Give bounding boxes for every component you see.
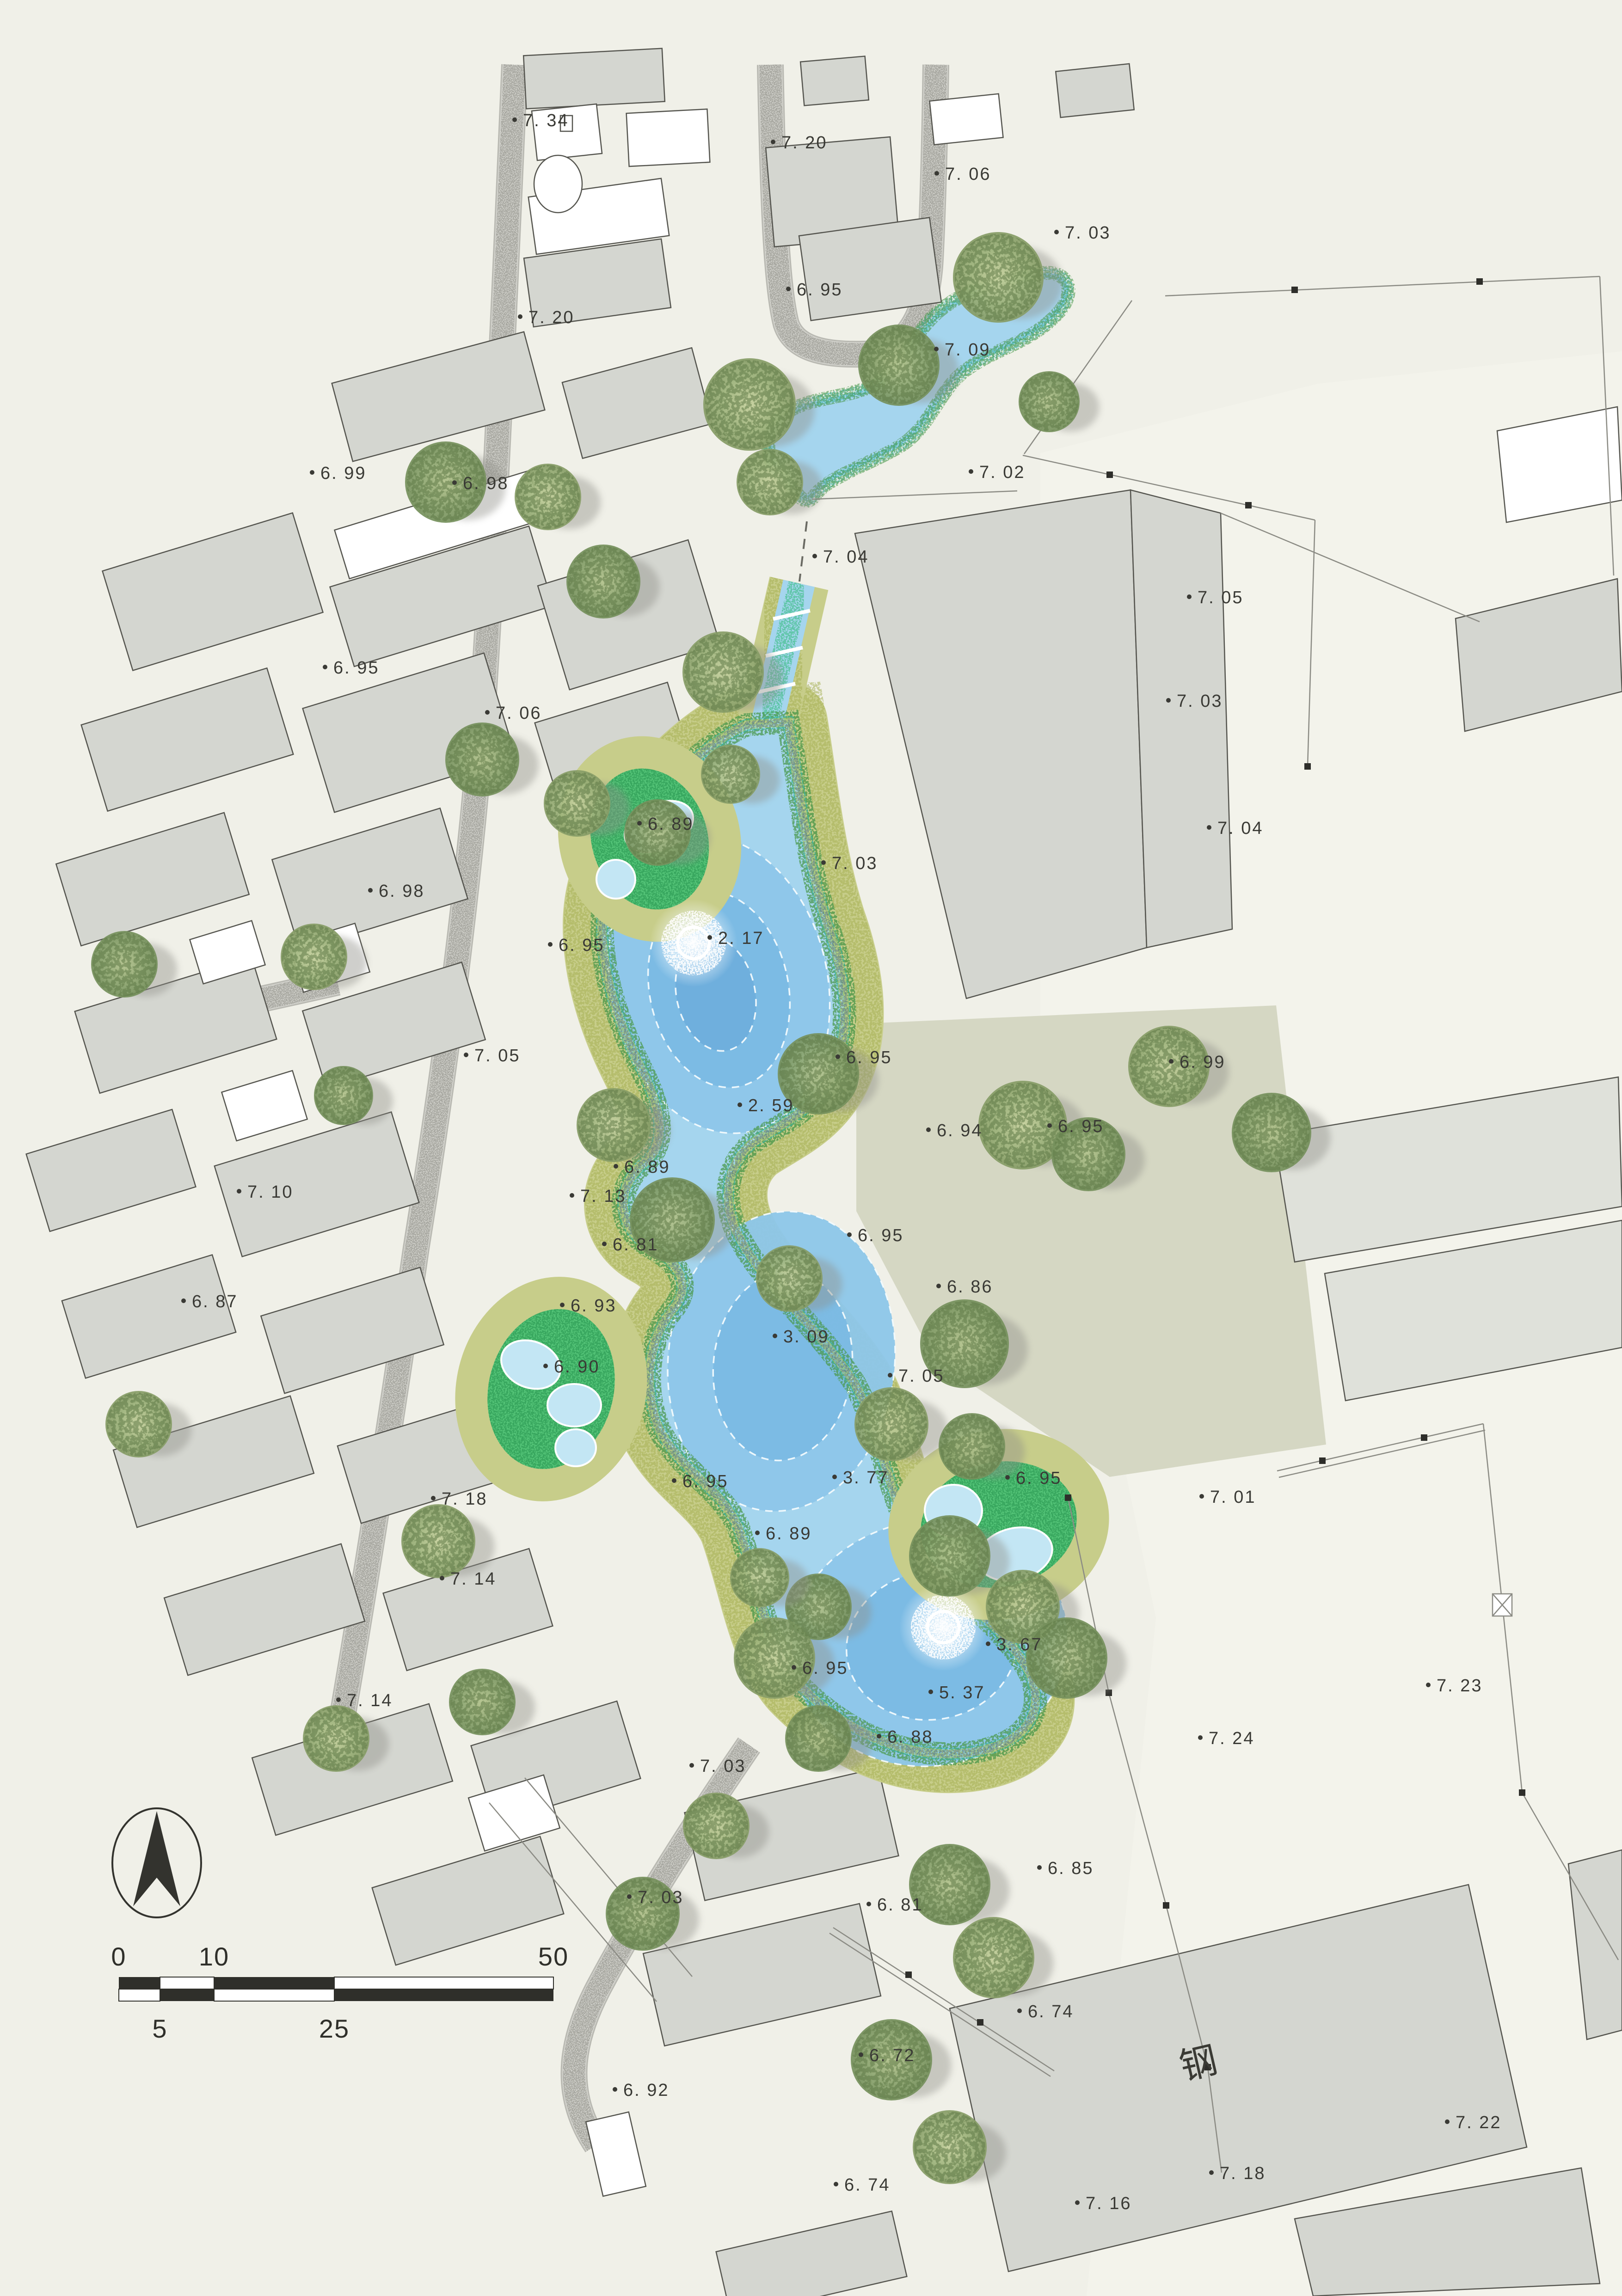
spot-value: 6. 95 (858, 1226, 904, 1245)
spot-value: 7. 06 (945, 165, 991, 184)
spot-value: 6. 87 (192, 1292, 238, 1311)
survey-marker (1519, 1789, 1525, 1796)
spot-dot (310, 470, 314, 475)
wetland-cell (555, 1429, 596, 1466)
tree-foliage-texture (684, 633, 762, 711)
spot-value: 7. 24 (1209, 1729, 1255, 1748)
spot-value: 7. 22 (1456, 2113, 1502, 2132)
spot-value: 6. 85 (1048, 1859, 1094, 1878)
building-white (627, 109, 710, 166)
building (1130, 490, 1232, 948)
tree-foliage-texture (911, 1517, 989, 1595)
tree-foliage-texture (578, 1090, 649, 1161)
tree-foliage-texture (731, 1549, 788, 1606)
spot-dot (707, 935, 712, 940)
survey-marker (1245, 502, 1252, 508)
tree-foliage-texture (447, 724, 518, 795)
tree-foliage-texture (684, 1794, 748, 1858)
spot-dot (1426, 1683, 1431, 1687)
building (799, 218, 941, 321)
spot-dot (859, 2052, 863, 2057)
spot-dot (792, 1665, 796, 1670)
scale-label: 0 (111, 1942, 126, 1971)
building (800, 56, 869, 106)
spot-dot (613, 2087, 617, 2092)
spot-value: 7. 05 (474, 1046, 521, 1065)
tree-foliage-texture (860, 326, 938, 404)
spot-dot (368, 888, 373, 893)
tree-foliage-texture (1020, 373, 1079, 431)
tree-foliage-texture (702, 746, 759, 803)
spot-dot (548, 942, 553, 947)
spot-dot (614, 1164, 618, 1169)
spot-dot (1209, 2170, 1214, 2175)
spot-value: 2. 17 (718, 929, 764, 948)
spot-dot (452, 480, 457, 485)
building-white (929, 94, 1003, 145)
spot-value: 7. 09 (945, 340, 991, 360)
survey-marker (905, 1971, 912, 1978)
survey-marker (1065, 1494, 1071, 1501)
spot-dot (1037, 1865, 1042, 1870)
spot-value: 7. 06 (496, 704, 542, 723)
spot-dot (1005, 1475, 1010, 1480)
spot-value: 7. 04 (823, 547, 869, 567)
spot-dot (518, 314, 522, 319)
spot-dot (323, 665, 327, 669)
spot-dot (926, 1127, 931, 1132)
spot-value: 6. 94 (937, 1121, 983, 1140)
spot-dot (1199, 1494, 1204, 1499)
spot-dot (431, 1496, 436, 1500)
scale-label: 5 (152, 2014, 167, 2043)
spot-dot (773, 1334, 777, 1338)
spot-dot (1169, 1059, 1173, 1064)
spot-dot (877, 1734, 881, 1739)
tree-foliage-texture (282, 925, 346, 989)
spot-dot (637, 821, 642, 826)
tree-foliage-texture (403, 1506, 474, 1577)
spot-value: 7. 16 (1086, 2194, 1132, 2213)
tree-foliage-texture (914, 2112, 985, 2183)
tree-foliage-texture (955, 234, 1042, 321)
survey-marker (1476, 278, 1483, 285)
spot-value: 7. 01 (1210, 1488, 1256, 1507)
spot-dot (1445, 2119, 1450, 2124)
spot-dot (237, 1189, 241, 1194)
spot-dot (1166, 698, 1171, 703)
spot-value: 7. 14 (450, 1569, 497, 1589)
tree-foliage-texture (786, 1707, 850, 1770)
tree-foliage-texture (92, 932, 156, 996)
spot-value: 7. 23 (1437, 1676, 1483, 1696)
spot-value: 6. 95 (1058, 1117, 1104, 1136)
spot-value: 6. 86 (947, 1277, 993, 1297)
scale-label: 50 (538, 1942, 569, 1971)
spot-dot (1207, 825, 1211, 830)
spot-value: 6. 88 (887, 1727, 934, 1747)
spot-dot (1047, 1123, 1052, 1128)
spot-value: 7. 03 (638, 1888, 684, 1907)
spot-value: 3. 09 (783, 1327, 829, 1347)
spot-value: 6. 95 (846, 1048, 892, 1067)
landmark-pond (534, 155, 582, 213)
spot-dot (1198, 1735, 1203, 1740)
spot-dot (812, 554, 817, 558)
spot-value: 6. 95 (682, 1472, 729, 1491)
spot-dot (1187, 594, 1192, 599)
spot-value: 6. 72 (869, 2046, 915, 2065)
spot-value: 6. 90 (554, 1357, 600, 1377)
spot-dot (866, 1902, 871, 1906)
tree-foliage-texture (568, 546, 639, 617)
spot-dot (543, 1364, 548, 1368)
spot-value: 7. 02 (979, 463, 1026, 482)
tree-foliage-texture (304, 1707, 368, 1770)
spot-dot (934, 347, 939, 351)
spot-dot (440, 1576, 444, 1580)
spot-value: 2. 59 (748, 1096, 794, 1115)
spot-value: 7. 13 (580, 1187, 627, 1206)
tree-foliage-texture (450, 1670, 514, 1734)
spot-value: 6. 92 (623, 2081, 670, 2100)
tree-foliage-texture (1233, 1094, 1309, 1170)
tree-foliage-texture (955, 1919, 1033, 1997)
spot-dot (986, 1641, 990, 1646)
site-plan-canvas: 7. 347. 207. 067. 036. 957. 207. 097. 02… (0, 0, 1622, 2296)
scale-label: 25 (319, 2014, 350, 2043)
spot-dot (627, 1894, 632, 1899)
tree-foliage-texture (738, 450, 802, 514)
spot-value: 7. 03 (1177, 692, 1223, 711)
spot-dot (1075, 2200, 1080, 2205)
spot-value: 6. 95 (802, 1659, 848, 1678)
tree-foliage-texture (757, 1247, 821, 1310)
spot-dot (570, 1193, 574, 1198)
spot-value: 6. 99 (320, 464, 367, 483)
spot-dot (464, 1053, 468, 1057)
spot-dot (560, 1303, 565, 1307)
spot-value: 7. 18 (1220, 2164, 1266, 2183)
spot-dot (821, 860, 826, 865)
spot-value: 7. 04 (1217, 819, 1264, 838)
spot-value: 6. 98 (379, 882, 425, 901)
wetland-cell (596, 860, 635, 899)
tree-foliage-texture (516, 465, 580, 529)
spot-dot (771, 140, 775, 144)
tree-foliage-texture (940, 1414, 1004, 1478)
tree-foliage-texture (1028, 1619, 1106, 1697)
tree-foliage-texture (545, 771, 609, 835)
spot-dot (936, 1284, 941, 1288)
spot-value: 7. 18 (442, 1489, 488, 1509)
survey-marker (1421, 1434, 1427, 1441)
fountain-spray-texture (661, 911, 726, 975)
scale-label: 10 (199, 1942, 229, 1971)
spot-value: 3. 77 (843, 1468, 889, 1488)
spot-dot (755, 1531, 760, 1535)
building (523, 49, 665, 109)
survey-marker (977, 2019, 983, 2026)
spot-value: 7. 14 (347, 1691, 393, 1710)
tree-foliage-texture (107, 1392, 171, 1456)
spot-value: 7. 20 (528, 308, 575, 327)
spot-value: 6. 89 (624, 1157, 670, 1177)
spot-value: 6. 99 (1180, 1053, 1226, 1072)
spot-value: 7. 03 (700, 1757, 746, 1776)
spot-value: 6. 74 (1028, 2002, 1074, 2021)
spot-dot (832, 1475, 837, 1479)
spot-value: 6. 89 (766, 1524, 812, 1543)
fountain-spray-texture (911, 1595, 976, 1659)
spot-dot (969, 469, 973, 474)
spot-dot (1017, 2008, 1022, 2013)
spot-value: 7. 03 (832, 854, 878, 873)
tree-foliage-texture (705, 360, 794, 449)
spot-value: 6. 98 (463, 474, 509, 493)
spot-dot (737, 1102, 742, 1107)
spot-dot (181, 1298, 186, 1303)
spot-dot (672, 1478, 676, 1483)
spot-dot (512, 117, 517, 122)
spot-dot (336, 1697, 341, 1702)
survey-marker (1304, 763, 1311, 770)
spot-dot (928, 1690, 933, 1694)
wetland-cell (547, 1384, 601, 1427)
tree-foliage-texture (315, 1067, 372, 1124)
spot-value: 7. 05 (1198, 588, 1244, 607)
spot-value: 6. 89 (648, 814, 694, 834)
spot-value: 7. 20 (781, 133, 828, 153)
spot-value: 6. 74 (844, 2175, 891, 2195)
survey-marker (1106, 471, 1113, 478)
spot-value: 5. 37 (939, 1683, 985, 1702)
spot-value: 6. 81 (877, 1895, 923, 1915)
spot-value: 6. 81 (613, 1235, 659, 1255)
spot-value: 6. 95 (797, 280, 843, 300)
spot-value: 6. 95 (1016, 1469, 1062, 1488)
spot-value: 6. 95 (559, 936, 605, 955)
spot-value: 7. 05 (898, 1366, 945, 1386)
spot-dot (689, 1763, 694, 1768)
spot-dot (834, 2182, 838, 2186)
spot-value: 3. 67 (996, 1635, 1043, 1654)
spot-dot (485, 710, 490, 715)
survey-marker (1291, 287, 1298, 293)
spot-dot (1054, 230, 1059, 234)
spot-value: 7. 03 (1065, 223, 1111, 243)
spot-dot (934, 171, 939, 176)
spot-dot (602, 1242, 607, 1246)
spot-dot (847, 1232, 852, 1237)
spot-dot (786, 287, 791, 291)
building (1056, 64, 1134, 117)
spot-value: 6. 93 (571, 1296, 617, 1316)
spot-value: 7. 10 (247, 1182, 294, 1202)
site-plan-drawing: 7. 347. 207. 067. 036. 957. 207. 097. 02… (0, 0, 1622, 2296)
survey-marker (1163, 1902, 1169, 1909)
survey-marker (1319, 1457, 1326, 1464)
spot-value: 7. 34 (523, 111, 569, 130)
spot-value: 6. 95 (333, 658, 380, 678)
tree-foliage-texture (856, 1389, 927, 1460)
spot-dot (888, 1373, 892, 1378)
spot-dot (836, 1054, 840, 1059)
